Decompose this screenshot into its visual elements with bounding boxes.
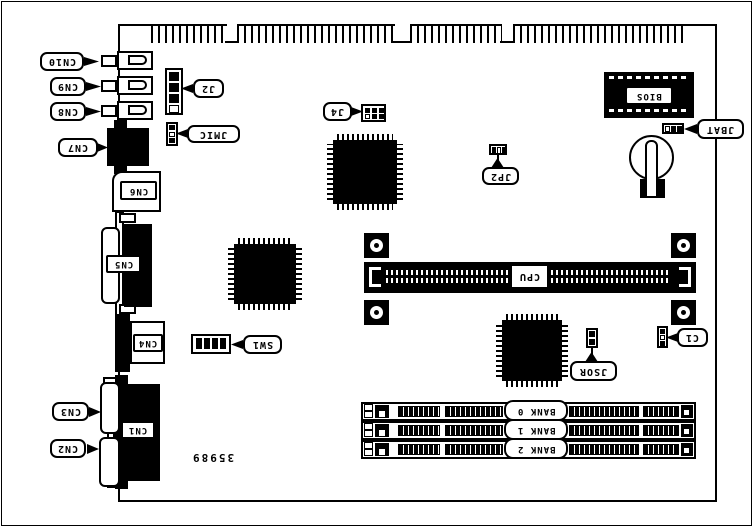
bank1-label-box: BANK 1 — [504, 419, 568, 440]
slot-contacts — [398, 444, 440, 455]
chip-body — [234, 244, 296, 304]
cpu-slot-end-right — [679, 267, 691, 287]
j4-pin — [365, 108, 370, 113]
cpu-slot-end-left — [369, 267, 381, 287]
cn4-label-box: CN4 — [133, 334, 163, 352]
slot-contacts — [445, 406, 503, 417]
jp2-pin — [497, 147, 501, 154]
board-edge-top-right — [683, 24, 717, 26]
cn8-jack-opening — [128, 105, 147, 115]
cn1-label: CN1 — [128, 425, 147, 435]
cn6-label: CN6 — [129, 186, 148, 196]
callout-jbat: JBAT — [697, 119, 744, 139]
jsor-label: JSOR — [579, 366, 607, 377]
callout-sw1: SW1 — [243, 335, 282, 354]
bank2-label-box: BANK 2 — [504, 438, 568, 459]
cn4-label: CN4 — [138, 338, 157, 348]
board-edge-right — [715, 24, 717, 502]
callout-jsor: JSOR — [570, 361, 617, 381]
bank1-label: BANK 1 — [517, 425, 556, 435]
cpu-label: CPU — [519, 271, 540, 282]
chip-body — [333, 140, 397, 204]
bank0-label-box: BANK 0 — [504, 400, 568, 421]
slot-end-cell — [364, 404, 373, 411]
slot-end-cell — [364, 449, 373, 456]
latch-notch — [684, 429, 689, 434]
latch-notch — [379, 430, 385, 436]
cpu-slot-pins — [386, 278, 509, 283]
slot-end-cell — [364, 423, 373, 430]
j4-jumper-block — [361, 104, 386, 122]
j4-pin — [379, 114, 384, 119]
j4-pin — [379, 108, 384, 113]
jbat-label: JBAT — [706, 124, 734, 135]
board-edge-top-left — [118, 24, 153, 26]
slot-contacts — [445, 444, 503, 455]
jbat-pin — [677, 126, 682, 132]
bank0-label: BANK 0 — [517, 406, 556, 416]
j4-pin — [372, 114, 377, 119]
callout-c1: C1 — [677, 328, 708, 347]
j2-pin — [169, 94, 179, 103]
jmic-header — [166, 122, 178, 146]
callout-jmic: JMIC — [187, 125, 240, 143]
chip-pins — [397, 144, 403, 200]
c1-pin — [660, 329, 665, 334]
jp2-pin — [492, 147, 496, 154]
jsor-jumper — [586, 328, 598, 348]
battery-holder — [645, 140, 658, 198]
cn5-screw-top — [119, 213, 136, 223]
cn4-connector-strip — [115, 314, 130, 372]
chip-pins — [562, 324, 568, 377]
cn5-label-box: CN5 — [106, 255, 141, 273]
cpu-mount-hole — [370, 239, 383, 252]
jmic-pin — [169, 132, 175, 137]
cpu-slot-pins — [551, 278, 671, 283]
qfp-chip-2 — [228, 238, 302, 310]
cn3-label: CN3 — [60, 406, 81, 417]
slot-contacts — [643, 425, 679, 436]
slot-end-cell — [364, 411, 373, 418]
callout-cn2: CN2 — [50, 439, 86, 458]
edge-fingers-group-2 — [237, 24, 395, 43]
cn6-label-box: CN6 — [120, 181, 157, 200]
cn9-label: CN9 — [57, 81, 78, 92]
cn7-label: CN7 — [67, 142, 88, 153]
board-edge-bottom — [118, 500, 717, 502]
slot-contacts — [569, 425, 639, 436]
j4-pin-1 — [365, 114, 370, 119]
latch-notch — [379, 411, 385, 417]
jsor-pin — [589, 339, 595, 345]
part-number: 35989 — [191, 451, 234, 464]
cn9-jack-stub — [101, 80, 117, 92]
cn10-jack-body — [117, 51, 153, 70]
slot-contacts — [643, 406, 679, 417]
cpu-label-box: CPU — [510, 264, 549, 289]
cpu-mount-hole — [677, 306, 690, 319]
callout-j4: J4 — [323, 102, 352, 121]
callout-cn7: CN7 — [58, 138, 98, 157]
j2-pin-1 — [169, 105, 179, 113]
chip-pins — [337, 204, 393, 210]
cpu-slot-pins — [386, 270, 509, 275]
slot-contacts — [643, 444, 679, 455]
bios-label: BIOS — [636, 91, 662, 101]
cpu-mount-hole — [677, 239, 690, 252]
sw1-switch — [212, 338, 218, 349]
cpu-slot-pins — [551, 270, 671, 275]
j2-label: J2 — [201, 83, 215, 94]
cn9-jack-body — [117, 76, 153, 95]
cn9-jack-opening — [128, 80, 147, 90]
callout-cn8: CN8 — [50, 102, 86, 121]
j4-pin — [372, 108, 377, 113]
slot-contacts — [398, 425, 440, 436]
edge-fingers-group-3 — [410, 24, 502, 43]
jmic-pin — [169, 138, 175, 143]
bios-socket-dash-bottom — [609, 109, 689, 112]
cn8-label: CN8 — [57, 106, 78, 117]
cn10-jack-opening — [128, 55, 147, 65]
cn8-jack-body — [117, 101, 153, 120]
callout-cn9: CN9 — [50, 77, 86, 96]
cn3-shell — [100, 382, 120, 434]
jmic-pin — [169, 125, 175, 130]
cn7-connector — [107, 128, 149, 166]
sw1-label: SW1 — [252, 339, 273, 350]
cn8-jack-stub — [101, 105, 117, 117]
slot-contacts — [569, 406, 639, 417]
jp2-label: JP2 — [490, 171, 511, 182]
slot-contacts — [445, 425, 503, 436]
qfp-chip-1 — [327, 134, 403, 210]
sw1-dip-switch — [191, 334, 231, 354]
edge-fingers-group-4 — [513, 24, 685, 43]
j2-header — [165, 68, 183, 115]
bank2-label: BANK 2 — [517, 444, 556, 454]
chip-pins — [506, 381, 558, 387]
jsor-pin — [589, 331, 595, 337]
latch-notch — [379, 449, 385, 455]
cn1-label-box: CN1 — [121, 421, 155, 439]
cn2-label: CN2 — [57, 443, 78, 454]
chip-body — [502, 320, 562, 381]
chip-pins — [238, 304, 292, 310]
latch-notch — [684, 410, 689, 415]
callout-j2: J2 — [193, 79, 224, 98]
qfp-chip-3 — [496, 314, 568, 387]
cn10-label: CN10 — [48, 56, 76, 67]
slot-contacts — [398, 406, 440, 417]
sw1-switch — [196, 338, 202, 349]
slot-end-cell — [364, 442, 373, 449]
j2-pin — [169, 83, 179, 92]
cpu-mount-hole — [370, 306, 383, 319]
j2-pin — [169, 72, 179, 81]
jbat-jumper — [662, 123, 684, 134]
sw1-switch — [204, 338, 210, 349]
motherboard-diagram: CN10 CN9 CN8 CN7 CN6 CN5 CN4 CN1 CN3 CN2… — [0, 0, 753, 527]
c1-pin — [660, 335, 665, 340]
c1-pin — [660, 341, 665, 346]
j4-label: J4 — [330, 106, 344, 117]
callout-jp2: JP2 — [482, 167, 519, 185]
bios-socket-dash-top — [609, 76, 689, 79]
sw1-switch — [220, 338, 226, 349]
slot-end-cell — [364, 430, 373, 437]
c1-jumper — [657, 326, 668, 348]
jmic-label: JMIC — [199, 129, 227, 140]
bios-label-box: BIOS — [626, 87, 672, 104]
chip-pins — [296, 248, 302, 300]
cn10-jack-stub — [101, 55, 117, 67]
cn2-shell — [99, 437, 120, 487]
callout-cn3: CN3 — [52, 402, 89, 421]
jbat-pin — [671, 126, 676, 132]
cn5-label: CN5 — [114, 259, 133, 269]
c1-label: C1 — [685, 332, 699, 343]
callout-cn10: CN10 — [40, 52, 84, 71]
jbat-pin — [665, 126, 670, 132]
jp2-pin — [502, 147, 506, 154]
latch-notch — [684, 448, 689, 453]
jp2-jumper — [489, 144, 507, 155]
edge-fingers-group-1 — [151, 24, 227, 43]
slot-contacts — [569, 444, 639, 455]
